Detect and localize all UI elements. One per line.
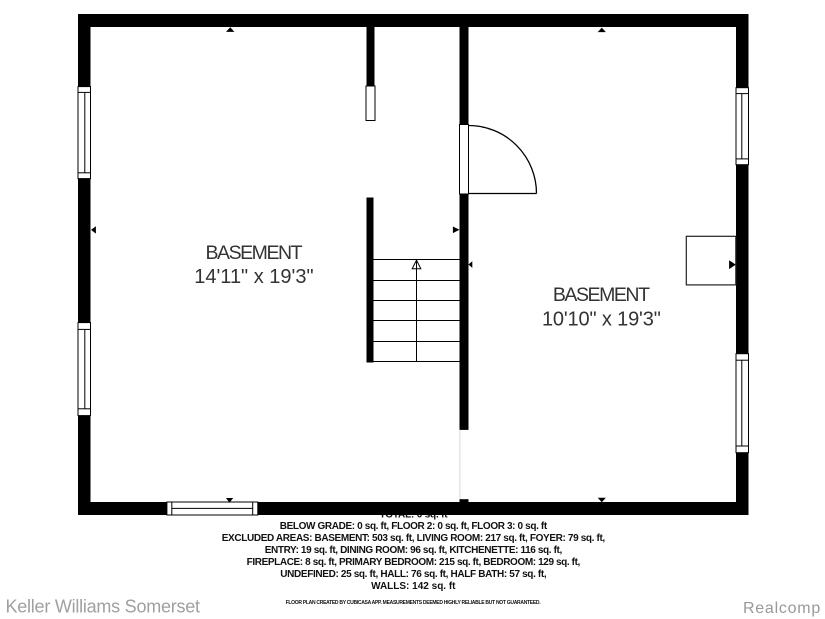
svg-text:FLOOR PLAN CREATED BY CUBICASA: FLOOR PLAN CREATED BY CUBICASA APP. MEAS… <box>286 600 542 606</box>
svg-text:Keller Williams Somerset: Keller Williams Somerset <box>6 597 201 617</box>
svg-text:BASEMENT: BASEMENT <box>205 242 302 264</box>
svg-text:ENTRY: 19 sq. ft, DINING ROOM:: ENTRY: 19 sq. ft, DINING ROOM: 96 sq. ft… <box>265 545 563 556</box>
svg-text:BELOW GRADE: 0 sq. ft, FLOOR 2: BELOW GRADE: 0 sq. ft, FLOOR 2: 0 sq. ft… <box>280 521 548 532</box>
svg-text:14'11" x 19'3": 14'11" x 19'3" <box>194 266 313 288</box>
svg-text:FIREPLACE: 8 sq. ft, PRIMARY B: FIREPLACE: 8 sq. ft, PRIMARY BEDROOM: 21… <box>247 557 581 568</box>
svg-text:10'10" x 19'3": 10'10" x 19'3" <box>542 309 661 331</box>
svg-text:EXCLUDED AREAS: BASEMENT: 503: EXCLUDED AREAS: BASEMENT: 503 sq. ft, LI… <box>222 533 606 544</box>
svg-text:Realcomp: Realcomp <box>743 600 821 617</box>
svg-text:WALLS: 142 sq. ft: WALLS: 142 sq. ft <box>371 581 456 592</box>
svg-text:BASEMENT: BASEMENT <box>553 284 650 306</box>
svg-text:UNDEFINED: 25 sq. ft, HALL: 76: UNDEFINED: 25 sq. ft, HALL: 76 sq. ft, H… <box>280 569 547 580</box>
